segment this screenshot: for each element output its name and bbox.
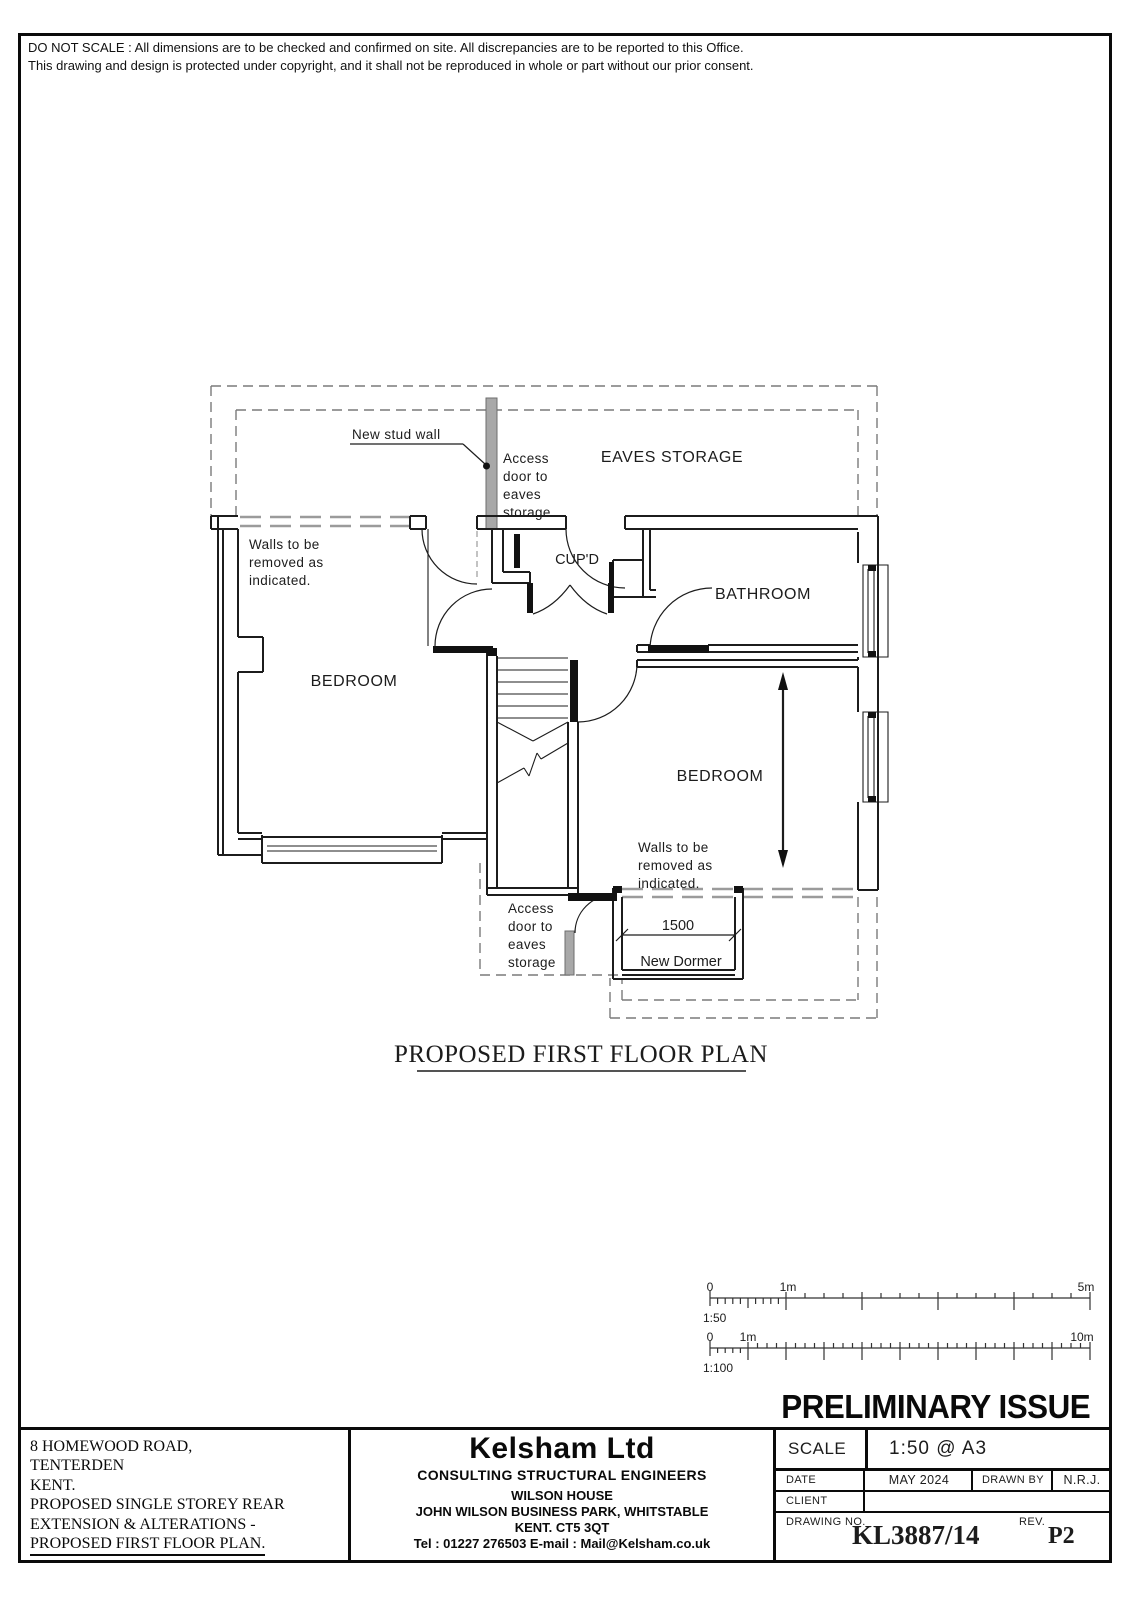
project-line: KENT. [30, 1476, 342, 1495]
plan-title: PROPOSED FIRST FLOOR PLAN [394, 1041, 768, 1068]
date-row: DATE MAY 2024 DRAWN BY N.R.J. [776, 1471, 1109, 1492]
svg-text:removed as: removed as [249, 555, 324, 570]
rev-value: P2 [1048, 1523, 1075, 1550]
project-line: 8 HOMEWOOD ROAD, [30, 1437, 342, 1456]
drawing-info-panel: SCALE 1:50 @ A3 DATE MAY 2024 DRAWN BY N… [776, 1430, 1109, 1560]
scale100-one-m: 1m [740, 1330, 757, 1344]
scale-value: 1:50 @ A3 [868, 1430, 1109, 1468]
svg-text:eaves: eaves [508, 937, 546, 952]
company-address-2: JOHN WILSON BUSINESS PARK, WHITSTABLE [351, 1504, 773, 1520]
project-description: 8 HOMEWOOD ROAD, TENTERDEN KENT. PROPOSE… [21, 1430, 348, 1560]
svg-text:storage: storage [503, 505, 551, 520]
preliminary-issue-stamp: PRELIMINARY ISSUE [781, 1388, 1090, 1426]
removed-walls [240, 517, 856, 897]
scale-row: SCALE 1:50 @ A3 [776, 1430, 1109, 1471]
svg-text:Walls to be: Walls to be [249, 537, 320, 552]
scale100-ten-m: 10m [1070, 1330, 1093, 1344]
scale-bar-1-50 [710, 1291, 1090, 1310]
date-label: DATE [776, 1471, 865, 1490]
svg-text:Access: Access [508, 901, 554, 916]
label-eaves-storage: EAVES STORAGE [601, 449, 743, 466]
company-address-1: WILSON HOUSE [351, 1488, 773, 1504]
label-new-stud-wall: New stud wall [352, 427, 440, 442]
direction-arrow [778, 672, 788, 868]
project-line: PROPOSED SINGLE STOREY REAR [30, 1495, 342, 1514]
project-line-underlined: PROPOSED FIRST FLOOR PLAN. [30, 1534, 265, 1556]
drawing-no-value: KL3887/14 [852, 1520, 980, 1551]
scale50-one-m: 1m [780, 1280, 797, 1294]
stud-wall-leader [350, 444, 490, 470]
svg-text:door to: door to [508, 919, 553, 934]
drawn-by-label: DRAWN BY [975, 1471, 1053, 1490]
label-walls-removed-right: Walls to be removed as indicated. [638, 840, 713, 891]
scale50-name: 1:50 [703, 1311, 727, 1325]
drawn-by-value: N.R.J. [1055, 1471, 1109, 1490]
svg-text:removed as: removed as [638, 858, 713, 873]
svg-text:eaves: eaves [503, 487, 541, 502]
label-access-door-bottom: Access door to eaves storage [508, 901, 556, 970]
svg-text:Access: Access [503, 451, 549, 466]
company-name: Kelsham Ltd [351, 1432, 773, 1466]
company-address-3: KENT. CT5 3QT [351, 1520, 773, 1536]
scale100-name: 1:100 [703, 1361, 733, 1375]
svg-text:storage: storage [508, 955, 556, 970]
title-block: 8 HOMEWOOD ROAD, TENTERDEN KENT. PROPOSE… [18, 1427, 1112, 1563]
label-bedroom-left: BEDROOM [311, 673, 398, 690]
svg-text:indicated.: indicated. [638, 876, 700, 891]
svg-text:indicated.: indicated. [249, 573, 311, 588]
svg-text:door to: door to [503, 469, 548, 484]
scale-label: SCALE [776, 1430, 868, 1468]
client-label: CLIENT [776, 1492, 865, 1511]
label-new-dormer: New Dormer [640, 954, 722, 970]
project-line: EXTENSION & ALTERATIONS - [30, 1515, 342, 1534]
client-value [867, 1492, 1109, 1511]
rev-label: REV. [1019, 1516, 1045, 1528]
stair-treads [497, 658, 568, 783]
label-walls-removed-left: Walls to be removed as indicated. [249, 537, 324, 588]
label-cupboard: CUP'D [555, 552, 599, 568]
scale-bar-1-100 [710, 1341, 1090, 1360]
label-dimension-1500: 1500 [662, 918, 694, 934]
company-panel: Kelsham Ltd CONSULTING STRUCTURAL ENGINE… [351, 1430, 773, 1560]
label-bedroom-right: BEDROOM [677, 768, 764, 785]
svg-text:Walls to be: Walls to be [638, 840, 709, 855]
label-bathroom: BATHROOM [715, 586, 811, 603]
project-line: TENTERDEN [30, 1456, 342, 1475]
scale50-five-m: 5m [1078, 1280, 1095, 1294]
client-row: CLIENT [776, 1492, 1109, 1513]
drawing-sheet: DO NOT SCALE : All dimensions are to be … [0, 0, 1131, 1600]
label-access-door-top: Access door to eaves storage [503, 451, 551, 520]
date-value: MAY 2024 [867, 1471, 973, 1490]
scale50-zero: 0 [707, 1280, 714, 1294]
company-profession: CONSULTING STRUCTURAL ENGINEERS [351, 1467, 773, 1483]
scale100-zero: 0 [707, 1330, 714, 1344]
floor-plan-drawing: New stud wall Access door to eaves stora… [0, 0, 1131, 1600]
company-contact: Tel : 01227 276503 E-mail : Mail@Kelsham… [351, 1536, 773, 1552]
drawing-number-row: DRAWING NO. KL3887/14 REV. P2 [776, 1513, 1109, 1560]
